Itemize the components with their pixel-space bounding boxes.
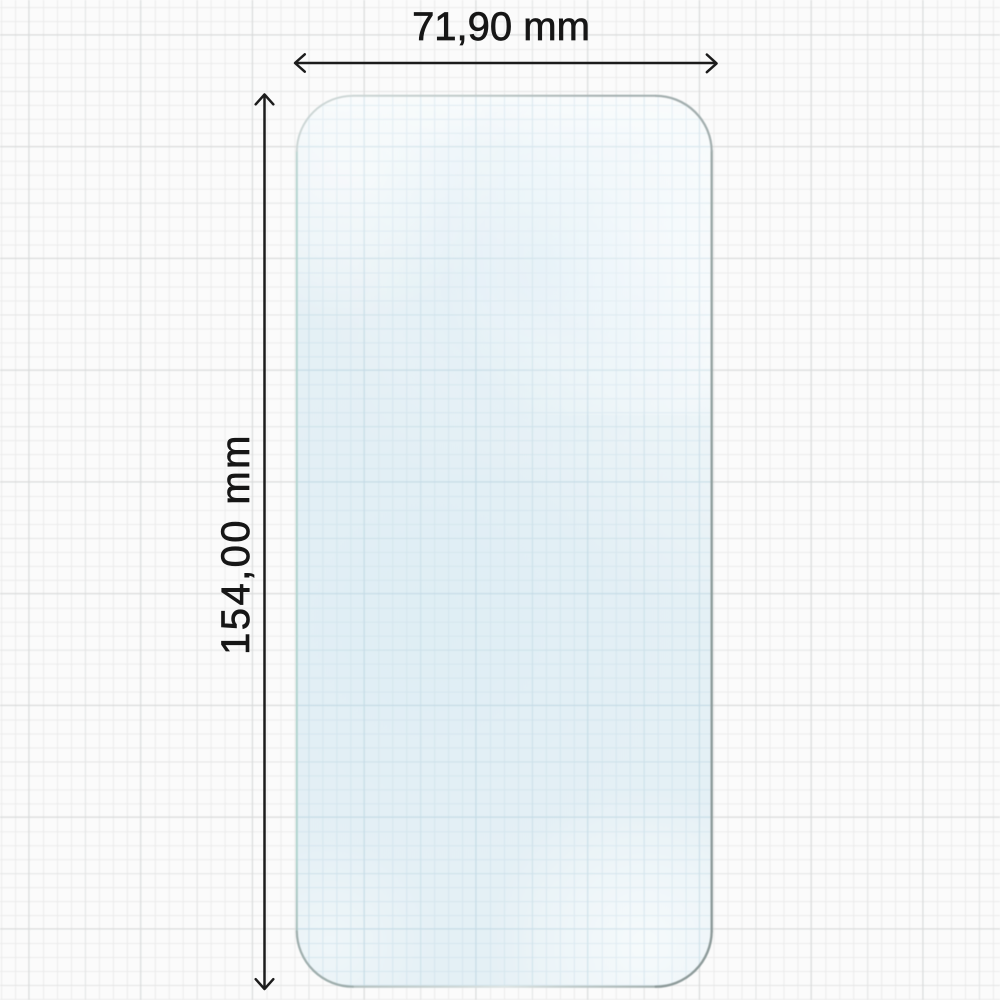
svg-text:71,90 mm: 71,90 mm xyxy=(412,5,590,49)
svg-text:154,00 mm: 154,00 mm xyxy=(214,433,258,655)
